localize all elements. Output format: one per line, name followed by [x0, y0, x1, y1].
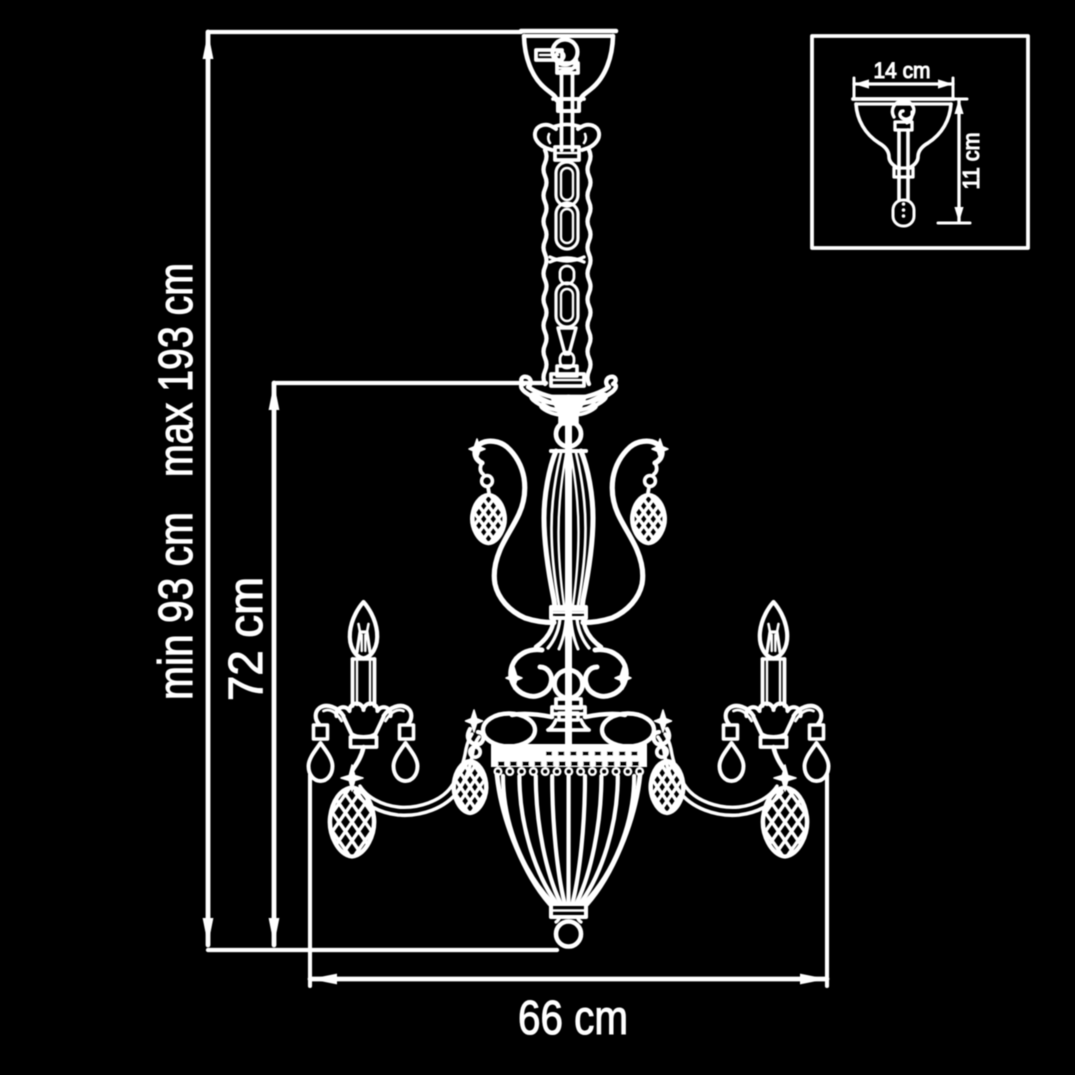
- svg-text:min 93 cm: min 93 cm: [150, 512, 203, 700]
- svg-text:72 cm: 72 cm: [220, 577, 273, 701]
- svg-text:11 cm: 11 cm: [958, 133, 984, 190]
- svg-text:66 cm: 66 cm: [518, 992, 628, 1045]
- svg-text:max 193 cm: max 193 cm: [150, 263, 203, 477]
- svg-text:14 cm: 14 cm: [874, 58, 931, 83]
